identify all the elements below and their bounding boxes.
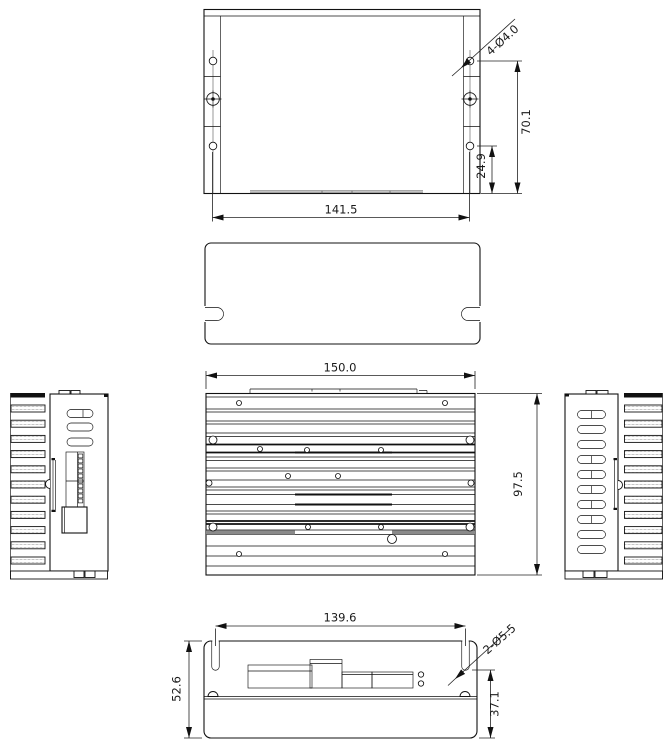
dim-front-height: 97.5 [511, 471, 525, 497]
dim-top-height: 70.1 [519, 109, 533, 135]
dim-top-width: 141.5 [325, 203, 358, 217]
top-view: 141.5 70.1 24.9 4-Ø4.0 [204, 10, 533, 222]
left-side-view [11, 391, 109, 580]
drawing-canvas: 141.5 70.1 24.9 4-Ø4.0 [0, 0, 672, 753]
dim-top-hole-callout: 4-Ø4.0 [483, 22, 521, 58]
technical-drawing: 141.5 70.1 24.9 4-Ø4.0 [0, 0, 672, 753]
dim-bottom-width: 139.6 [324, 611, 357, 625]
dim-front-width: 150.0 [324, 361, 357, 375]
dim-bottom-slot-height: 37.1 [488, 691, 502, 717]
front-view: 150.0 97.5 [206, 361, 542, 576]
dim-bottom-slot-callout: 2-Ø5.5 [480, 621, 518, 657]
bottom-view: 139.6 52.6 37.1 2-Ø5.5 [170, 611, 519, 739]
dim-bottom-height: 52.6 [170, 676, 184, 702]
right-side-view [565, 391, 663, 580]
dim-top-hole-offset: 24.9 [474, 153, 488, 179]
back-view [203, 243, 481, 344]
